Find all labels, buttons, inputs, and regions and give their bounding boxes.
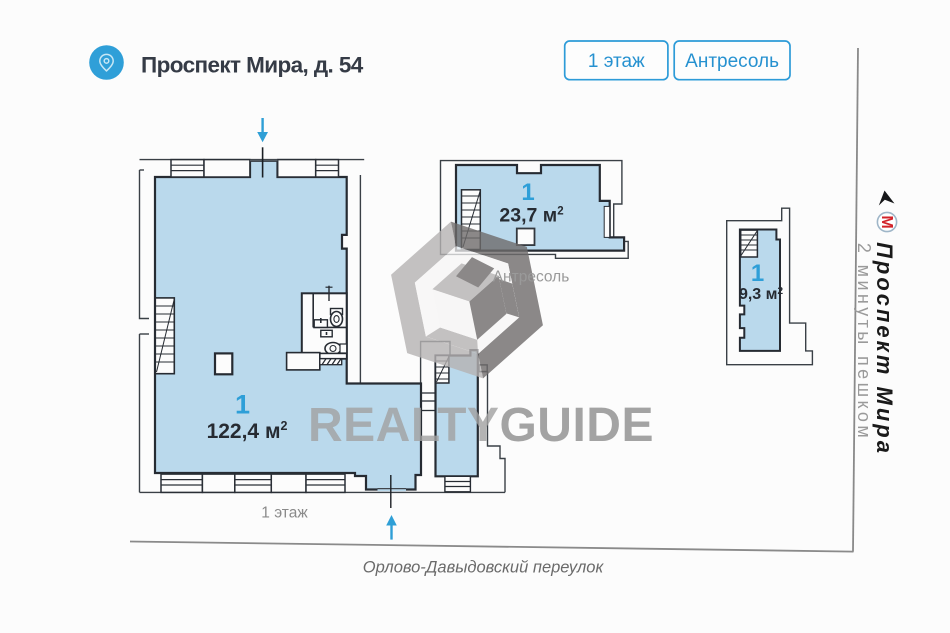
svg-text:1 этаж: 1 этаж	[261, 505, 308, 522]
svg-text:Орлово-Давыдовский переулок: Орлово-Давыдовский переулок	[363, 559, 605, 577]
svg-text:Проспект Мира, д. 54: Проспект Мира, д. 54	[141, 53, 364, 78]
svg-text:122,4 м2: 122,4 м2	[207, 419, 288, 443]
svg-text:1: 1	[751, 260, 764, 287]
svg-text:1: 1	[521, 179, 534, 206]
svg-text:1: 1	[235, 390, 250, 420]
svg-text:М: М	[878, 215, 895, 228]
svg-text:Антресоль: Антресоль	[493, 269, 570, 286]
svg-text:Проспект Мира: Проспект Мира	[872, 242, 897, 456]
svg-text:2 минуты пешком: 2 минуты пешком	[854, 243, 874, 441]
svg-text:9,3 м2: 9,3 м2	[739, 286, 784, 303]
svg-text:Антресоль: Антресоль	[685, 51, 779, 72]
svg-text:REALTYGUIDE: REALTYGUIDE	[308, 399, 654, 452]
svg-text:1 этаж: 1 этаж	[588, 51, 645, 72]
svg-text:23,7 м2: 23,7 м2	[499, 205, 563, 227]
